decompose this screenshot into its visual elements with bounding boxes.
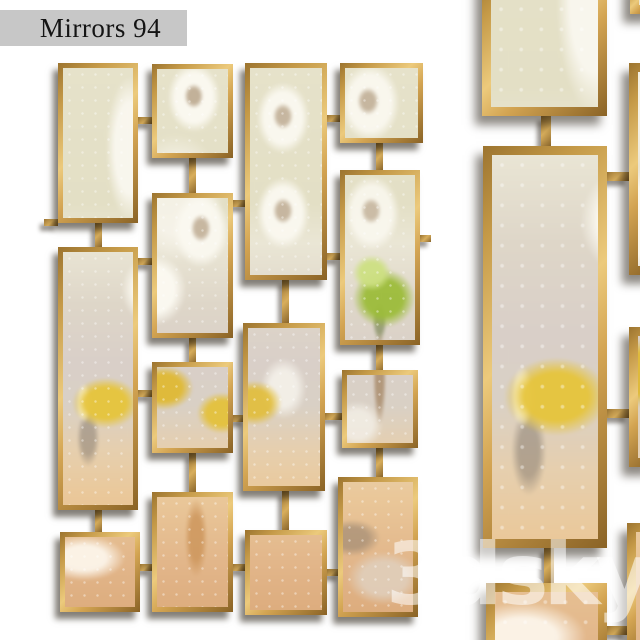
connector-bar <box>541 116 551 146</box>
title-badge: Mirrors 94 <box>0 10 187 46</box>
mirror-tile <box>482 0 607 116</box>
connector-bar <box>607 409 629 418</box>
product-title: Mirrors 94 <box>40 13 161 44</box>
mirror-tile <box>486 583 607 640</box>
wallpaper-dots <box>495 592 598 640</box>
mirror-glass <box>495 592 598 640</box>
mirror-glass <box>491 0 598 107</box>
connector-bar <box>607 172 629 181</box>
mirror-composition-detail <box>0 0 640 640</box>
mirror-tile <box>483 146 607 548</box>
mirror-glass <box>492 155 598 539</box>
mirror-tile <box>630 0 640 14</box>
mirror-tile <box>629 63 640 275</box>
connector-bar <box>607 626 627 635</box>
wallpaper-dots <box>491 0 598 107</box>
wallpaper-dots <box>636 532 640 640</box>
mirror-tile <box>629 327 640 467</box>
wallpaper-dots <box>492 155 598 539</box>
product-preview-canvas: Mirrors 94 3dsky <box>0 0 640 640</box>
mirror-tile <box>627 523 640 640</box>
connector-bar <box>544 548 554 583</box>
mirror-glass <box>636 532 640 640</box>
